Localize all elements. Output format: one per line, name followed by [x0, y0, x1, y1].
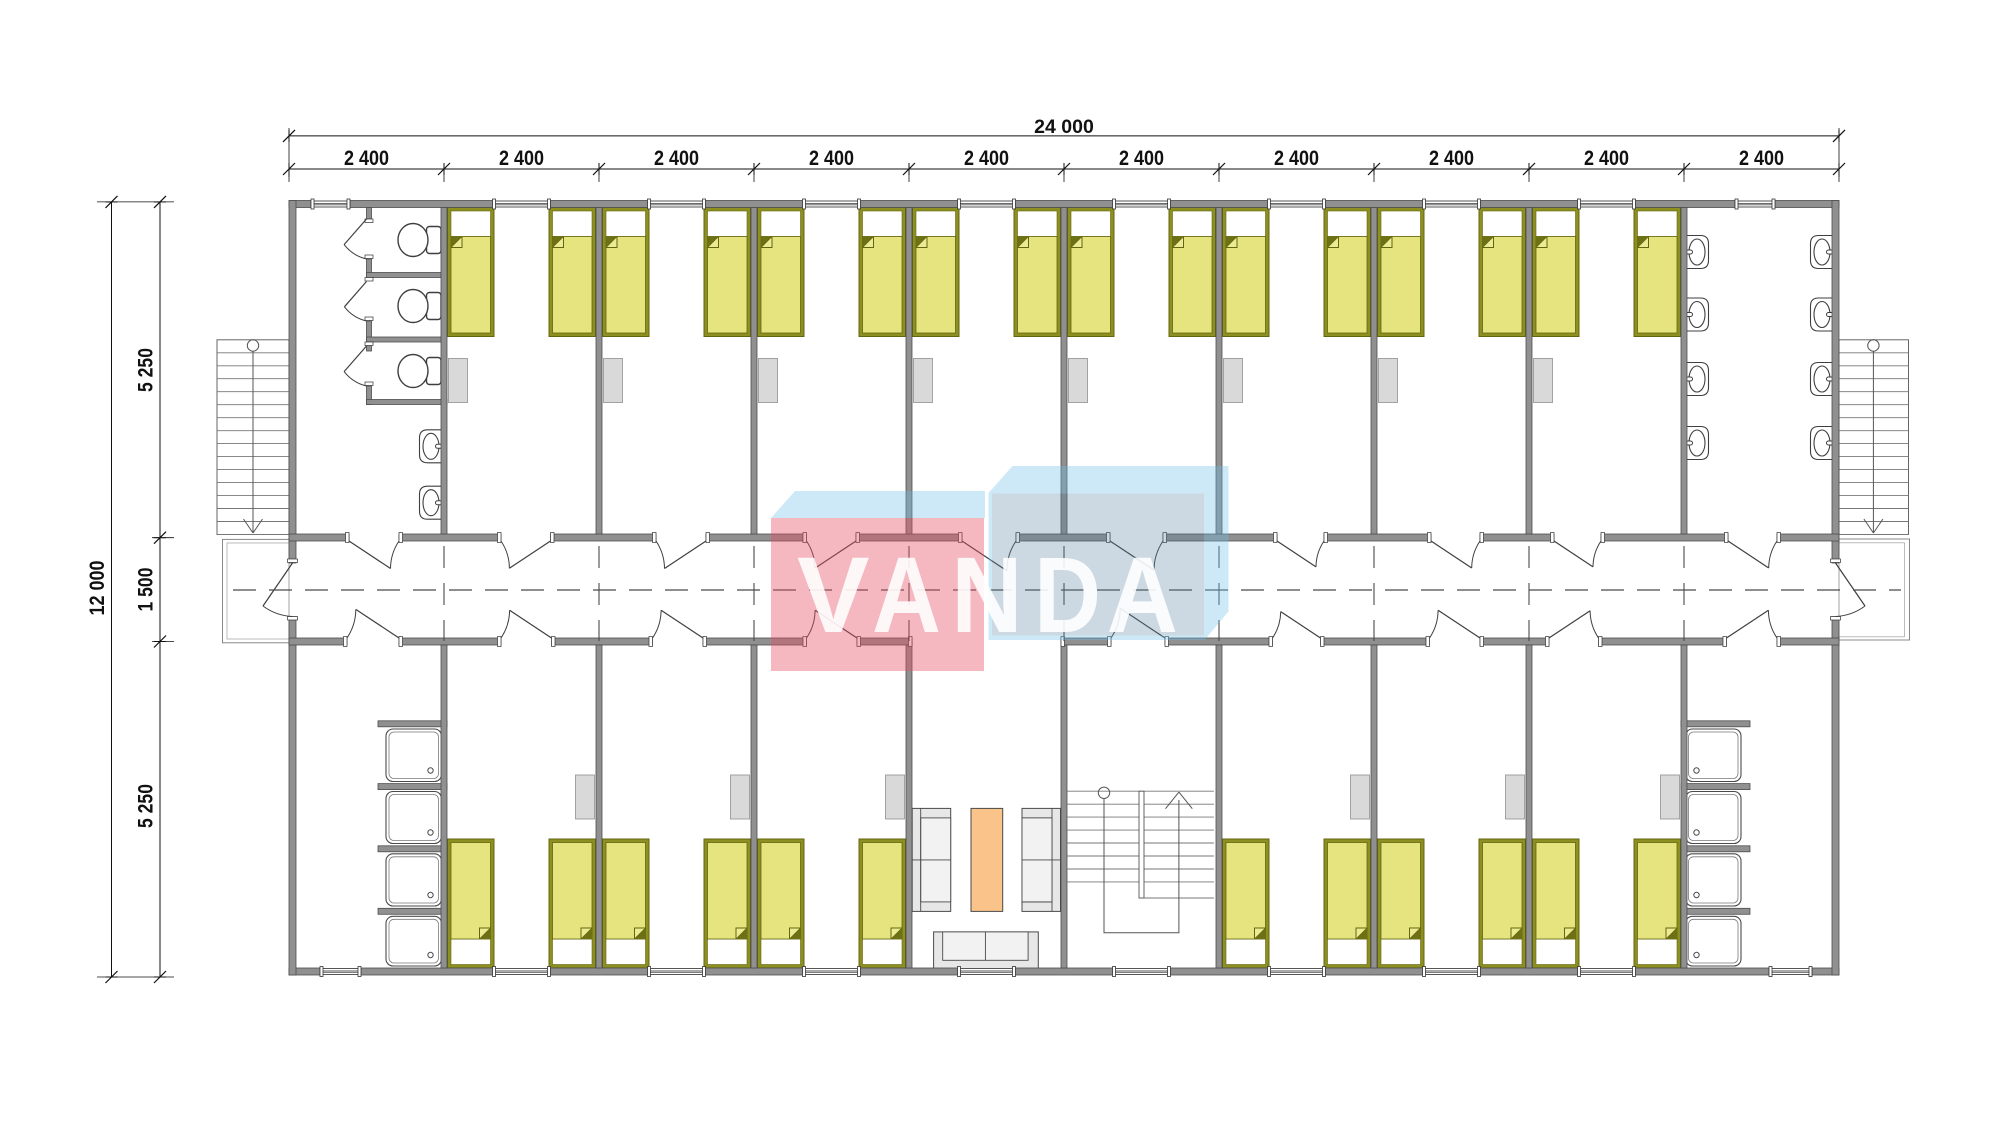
svg-text:N: N: [951, 534, 1022, 655]
svg-text:5 250: 5 250: [135, 784, 158, 828]
svg-text:V: V: [797, 534, 870, 655]
svg-text:A: A: [1107, 534, 1178, 655]
svg-text:5 250: 5 250: [135, 348, 158, 392]
svg-text:2 400: 2 400: [1429, 147, 1474, 170]
svg-text:2 400: 2 400: [1274, 147, 1319, 170]
svg-text:1 500: 1 500: [135, 568, 158, 612]
svg-text:2 400: 2 400: [809, 147, 854, 170]
svg-text:2 400: 2 400: [1119, 147, 1164, 170]
svg-text:2 400: 2 400: [499, 147, 544, 170]
svg-text:2 400: 2 400: [1584, 147, 1629, 170]
svg-text:A: A: [872, 534, 941, 655]
svg-text:12 000: 12 000: [86, 561, 109, 616]
svg-text:2 400: 2 400: [344, 147, 389, 170]
svg-text:2 400: 2 400: [654, 147, 699, 170]
svg-text:2 400: 2 400: [1739, 147, 1784, 170]
svg-text:2 400: 2 400: [964, 147, 1009, 170]
svg-text:D: D: [1034, 534, 1101, 655]
svg-text:24 000: 24 000: [1034, 116, 1094, 138]
